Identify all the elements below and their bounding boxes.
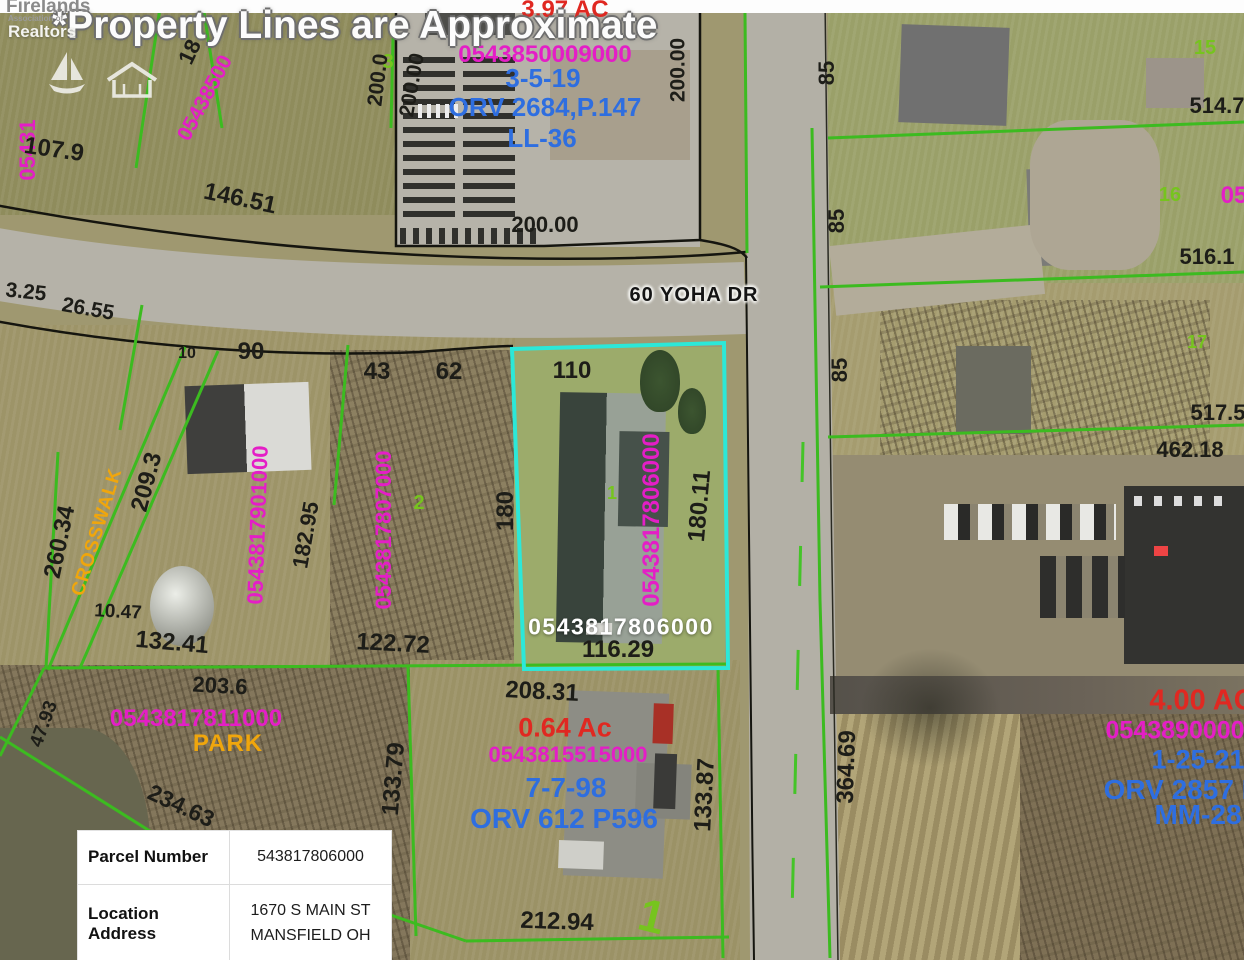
map-label: 122.72 bbox=[356, 630, 431, 658]
realtor-logo: Firelands Association of Realtors bbox=[4, 0, 174, 110]
map-label: ORV 612 P596 bbox=[470, 805, 658, 833]
map-label: 200.00 bbox=[396, 52, 428, 119]
map-label: 132.41 bbox=[134, 628, 209, 658]
map-label: 3.25 bbox=[5, 279, 48, 304]
map-labels: 05431107.91805438500146.513200.0200.003.… bbox=[0, 0, 1244, 960]
logo-realtors: Realtors bbox=[8, 22, 76, 42]
map-label: MM-28 bbox=[1154, 801, 1241, 829]
info-value-location-address: 1670 S MAIN ST MANSFIELD OH bbox=[230, 885, 391, 960]
map-label: 17 bbox=[1187, 333, 1207, 351]
map-label: 2 bbox=[413, 493, 424, 513]
map-label: 3-5-19 bbox=[505, 65, 580, 91]
map-label: 200.00 bbox=[511, 214, 578, 236]
map-label: 0543817811000 bbox=[110, 707, 282, 731]
map-label: PARK bbox=[193, 732, 263, 756]
map-label: 60 YOHA DR bbox=[630, 285, 759, 305]
map-label: 1 bbox=[634, 891, 670, 942]
map-label: 116.29 bbox=[582, 638, 654, 662]
info-label-parcel-number: Parcel Number bbox=[78, 831, 230, 885]
map-label: 212.94 bbox=[520, 909, 594, 936]
map-label: 05438500 bbox=[174, 52, 236, 144]
map-label: 16 bbox=[1159, 185, 1181, 205]
map-label: 0543817807000 bbox=[373, 450, 395, 609]
map-label: 133.87 bbox=[691, 758, 719, 833]
map-label: 85 bbox=[826, 209, 848, 233]
map-label: 1 bbox=[607, 484, 617, 502]
map-label: 180 bbox=[494, 491, 518, 531]
map-label: 180.11 bbox=[685, 469, 715, 543]
map-label: 90 bbox=[238, 340, 265, 364]
sailboat-icon bbox=[48, 50, 86, 96]
map-label: 516.1 bbox=[1179, 246, 1234, 268]
map-label: 208.31 bbox=[505, 678, 580, 706]
map-label: 200.0 bbox=[364, 53, 391, 108]
house-icon bbox=[104, 58, 160, 100]
map-label: 203.6 bbox=[192, 674, 248, 699]
map-label: 4.00 AC bbox=[1149, 687, 1244, 716]
info-value-parcel-number: 543817806000 bbox=[230, 831, 391, 885]
map-label: 0543815515000 bbox=[488, 744, 647, 766]
map-label: 05 bbox=[1221, 184, 1244, 208]
parcel-map: 05431107.91805438500146.513200.0200.003.… bbox=[0, 0, 1244, 960]
map-label: 85 bbox=[816, 61, 838, 85]
map-label: 200.00 bbox=[668, 38, 689, 102]
map-label: ORV 2684,P.147 bbox=[449, 94, 642, 120]
map-label: 364.69 bbox=[834, 730, 861, 804]
map-label: 0543817806000 bbox=[640, 433, 664, 607]
map-label: 47.93 bbox=[27, 698, 61, 749]
map-label: 146.51 bbox=[202, 180, 279, 219]
map-label: 0.64 Ac bbox=[518, 715, 612, 742]
map-label: 182.95 bbox=[289, 500, 322, 570]
map-label: 43 bbox=[364, 360, 391, 384]
map-label: 209.3 bbox=[128, 450, 167, 514]
map-label: 7-7-98 bbox=[526, 774, 607, 802]
info-label-location-address: Location Address bbox=[78, 885, 230, 960]
map-label: 1-25-21 bbox=[1151, 747, 1244, 774]
map-label: 10.47 bbox=[94, 601, 142, 622]
map-label: 517.5 bbox=[1190, 402, 1244, 424]
map-label: 10 bbox=[178, 346, 196, 362]
map-label: 234.63 bbox=[144, 781, 217, 832]
map-label: 85 bbox=[829, 358, 851, 382]
map-label: 514.7 bbox=[1189, 95, 1244, 117]
map-label: 462.18 bbox=[1156, 439, 1223, 461]
map-label: 15 bbox=[1194, 38, 1216, 58]
parcel-info-table: Parcel Number 543817806000 Location Addr… bbox=[78, 831, 391, 960]
map-label: 05438900008 bbox=[1106, 719, 1244, 744]
map-label: 62 bbox=[436, 360, 463, 384]
map-label: 110 bbox=[553, 359, 592, 383]
map-label: 26.55 bbox=[60, 294, 115, 324]
map-label: CROSSWALK bbox=[69, 466, 126, 598]
map-label: LL-36 bbox=[507, 125, 576, 151]
map-label: 133.79 bbox=[379, 741, 409, 816]
map-label: 0543817901000 bbox=[244, 445, 272, 605]
